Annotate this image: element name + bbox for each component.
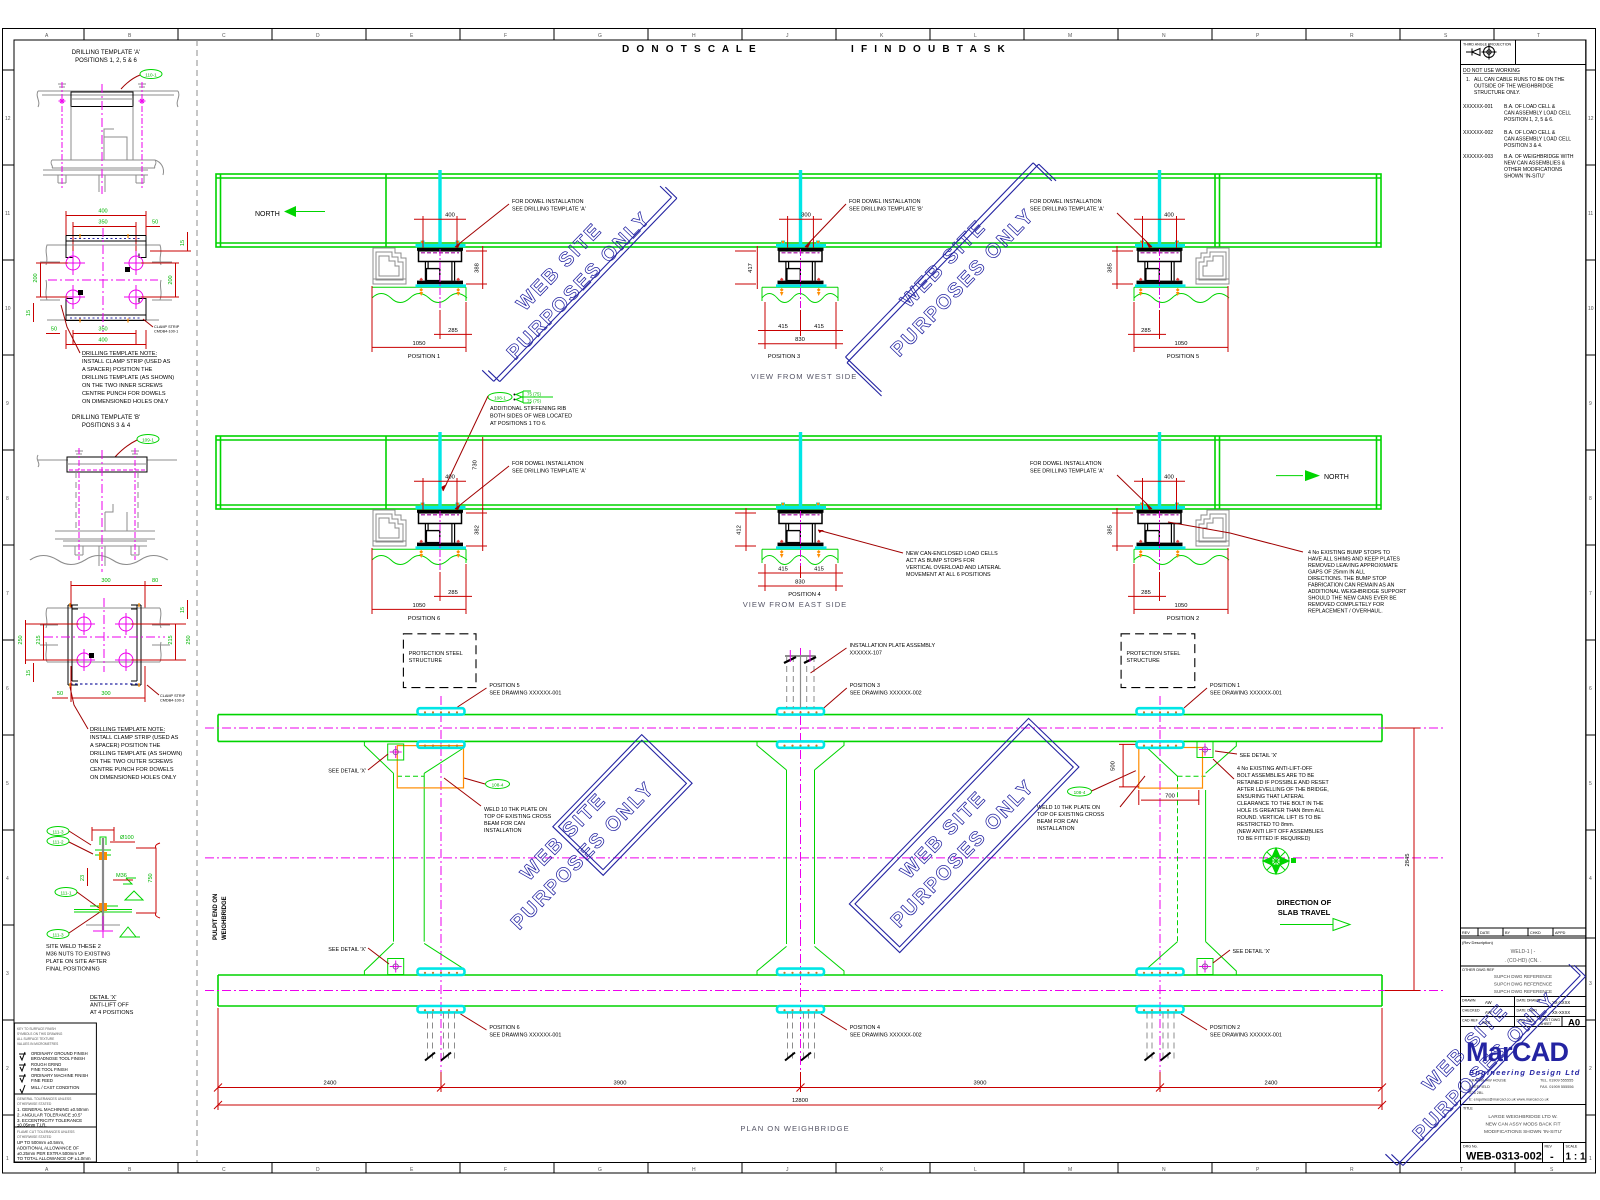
- svg-text:MOVEMENT AT ALL 6 POSITIONS: MOVEMENT AT ALL 6 POSITIONS: [906, 572, 991, 578]
- svg-text:6: 6: [1589, 686, 1592, 692]
- svg-text:4: 4: [6, 876, 9, 882]
- svg-text:75 (75): 75 (75): [527, 392, 541, 397]
- svg-text:285: 285: [448, 590, 458, 596]
- svg-text:NORTH: NORTH: [255, 211, 280, 218]
- svg-text:SEE DRILLING TEMPLATE 'A': SEE DRILLING TEMPLATE 'A': [512, 207, 586, 213]
- svg-text:10: 10: [5, 306, 11, 312]
- svg-text:110-1: 110-1: [145, 73, 157, 78]
- svg-text:FOR DOWEL INSTALLATION: FOR DOWEL INSTALLATION: [1030, 199, 1102, 205]
- svg-text:4: 4: [1589, 876, 1592, 882]
- svg-text:1050: 1050: [1175, 603, 1188, 609]
- svg-text:TEL. 01909 555555: TEL. 01909 555555: [1540, 1079, 1573, 1083]
- svg-text:PLATE ON SITE AFTER: PLATE ON SITE AFTER: [46, 959, 107, 965]
- svg-text:APPD: APPD: [1555, 931, 1566, 935]
- svg-text:2. ANGULAR TOLERANCE ±0.5°: 2. ANGULAR TOLERANCE ±0.5°: [17, 1113, 82, 1118]
- svg-text:200: 200: [168, 275, 174, 284]
- svg-text:FINAL POSITIONING: FINAL POSITIONING: [46, 967, 100, 973]
- svg-text:OTHER DWG REF: OTHER DWG REF: [1462, 968, 1495, 972]
- svg-text:15: 15: [180, 607, 186, 613]
- svg-text:BOTH SIDES OF WEB LOCATED: BOTH SIDES OF WEB LOCATED: [490, 414, 572, 420]
- svg-text:F: F: [504, 1167, 507, 1173]
- svg-text:NORTH: NORTH: [1324, 474, 1349, 481]
- svg-text:ADDITIONAL STIFFENING RIB: ADDITIONAL STIFFENING RIB: [490, 406, 567, 412]
- svg-text:ON THE TWO INNER SCREWS: ON THE TWO INNER SCREWS: [82, 383, 163, 389]
- svg-text:285: 285: [1141, 590, 1151, 596]
- svg-text:385: 385: [1108, 525, 1114, 535]
- svg-text:DO NOT USE WORKING: DO NOT USE WORKING: [1463, 68, 1520, 74]
- svg-text:C: C: [222, 33, 226, 39]
- svg-text:8: 8: [6, 496, 9, 502]
- svg-text:830: 830: [795, 580, 805, 586]
- svg-text:3: 3: [6, 971, 9, 977]
- svg-text:AW: AW: [1485, 1000, 1492, 1005]
- svg-text:SEE DRAWING XXXXXX-002: SEE DRAWING XXXXXX-002: [850, 691, 922, 697]
- svg-text:215: 215: [36, 635, 42, 644]
- svg-text:GAPS OF 25mm IN ALL: GAPS OF 25mm IN ALL: [1308, 570, 1365, 576]
- svg-text:FOR DOWEL INSTALLATION: FOR DOWEL INSTALLATION: [512, 199, 584, 205]
- svg-text:F: F: [504, 33, 507, 39]
- svg-text:FABRICATION CAN REMAIN AS AN: FABRICATION CAN REMAIN AS AN: [1308, 583, 1395, 589]
- svg-text:INSTALLATION: INSTALLATION: [484, 828, 522, 834]
- svg-text:WEIGHBRIDGE: WEIGHBRIDGE: [222, 896, 228, 940]
- svg-text:POSITION 5: POSITION 5: [489, 683, 519, 689]
- svg-text:11: 11: [5, 211, 10, 217]
- svg-text:BOLT ASSEMBLIES ARE TO BE: BOLT ASSEMBLIES ARE TO BE: [1237, 773, 1315, 779]
- svg-text:PULPIT END ON: PULPIT END ON: [213, 894, 219, 940]
- svg-text:MILL / CAST CONDITION: MILL / CAST CONDITION: [31, 1085, 79, 1090]
- svg-text:TO BE FITTED IF REQUIRED): TO BE FITTED IF REQUIRED): [1237, 836, 1310, 842]
- svg-text:400: 400: [98, 338, 107, 344]
- svg-text:DETAIL 'X': DETAIL 'X': [90, 995, 116, 1001]
- svg-text:CHECKED: CHECKED: [1462, 1009, 1480, 1013]
- svg-text:1 : 1: 1 : 1: [1566, 1152, 1586, 1163]
- svg-text:VERTICAL OVERLOAD AND LATERAL: VERTICAL OVERLOAD AND LATERAL: [906, 565, 1001, 571]
- svg-text:108-4: 108-4: [492, 783, 504, 788]
- svg-text:111-1: 111-1: [60, 891, 72, 896]
- svg-text:INSTALL CLAMP STRIP (USED AS: INSTALL CLAMP STRIP (USED AS: [82, 359, 171, 365]
- svg-text:DRILLING TEMPLATE 'A': DRILLING TEMPLATE 'A': [72, 50, 140, 56]
- svg-text:12: 12: [1588, 116, 1594, 122]
- svg-text:T: T: [1537, 33, 1540, 39]
- svg-text:TOP OF EXISTING CROSS: TOP OF EXISTING CROSS: [484, 814, 552, 820]
- svg-text:SEE DRAWING XXXXXX-002: SEE DRAWING XXXXXX-002: [850, 1033, 922, 1039]
- svg-text:ENSURING THAT LATERAL: ENSURING THAT LATERAL: [1237, 794, 1304, 800]
- svg-text:750: 750: [148, 873, 154, 882]
- svg-text:FOR DOWEL INSTALLATION: FOR DOWEL INSTALLATION: [1030, 461, 1102, 467]
- svg-text:XXXXXX-107: XXXXXX-107: [850, 651, 882, 657]
- svg-text:400: 400: [1164, 475, 1174, 481]
- svg-text:SUPCH DWG REFERENCE: SUPCH DWG REFERENCE: [1494, 982, 1552, 987]
- svg-text:DRG No.: DRG No.: [1463, 1145, 1478, 1149]
- svg-text:REV: REV: [1545, 1145, 1553, 1149]
- svg-text:INSTALLATION: INSTALLATION: [1037, 826, 1075, 832]
- svg-text:ROUND. VERTICAL LIFT IS TO BE: ROUND. VERTICAL LIFT IS TO BE: [1237, 815, 1321, 821]
- svg-text:POSITION 3: POSITION 3: [850, 683, 880, 689]
- svg-text:400: 400: [445, 475, 455, 481]
- svg-text:15: 15: [180, 240, 186, 246]
- svg-text:REMOVED COMPLETELY FOR: REMOVED COMPLETELY FOR: [1308, 602, 1384, 608]
- svg-text:1050: 1050: [413, 603, 426, 609]
- svg-text:400: 400: [1164, 213, 1174, 219]
- svg-text:111-2: 111-2: [52, 840, 64, 845]
- svg-text:A SPACER) POSITION THE: A SPACER) POSITION THE: [82, 367, 153, 373]
- svg-text:M36 NUTS TO EXISTING: M36 NUTS TO EXISTING: [46, 952, 110, 958]
- svg-text:FLAME CUT TOLERANCES UNLESS: FLAME CUT TOLERANCES UNLESS: [17, 1130, 75, 1134]
- svg-text:50: 50: [51, 327, 57, 333]
- svg-text:ACT AS BUMP STOPS FOR: ACT AS BUMP STOPS FOR: [906, 558, 975, 564]
- svg-text:POSITION 1: POSITION 1: [408, 354, 441, 360]
- svg-text:I F I N D O U B T A S K: I F I N D O U B T A S K: [851, 44, 1007, 55]
- svg-text:STRUCTURE: STRUCTURE: [409, 658, 443, 664]
- svg-text:OTHER MODIFICATIONS: OTHER MODIFICATIONS: [1504, 167, 1563, 173]
- svg-text:Ø100: Ø100: [120, 835, 134, 841]
- svg-text:(Rev Description): (Rev Description): [1462, 940, 1494, 945]
- svg-text:SLAB TRAVEL: SLAB TRAVEL: [1278, 908, 1331, 917]
- svg-text:POSITION 4: POSITION 4: [850, 1025, 880, 1031]
- svg-text:BROADNOSE TOOL FINISH: BROADNOSE TOOL FINISH: [31, 1056, 85, 1061]
- svg-text:111-3: 111-3: [52, 933, 64, 938]
- svg-text:50: 50: [57, 691, 63, 697]
- svg-text:300: 300: [801, 213, 811, 219]
- svg-text:415: 415: [814, 324, 824, 330]
- svg-text:2: 2: [1589, 1066, 1592, 1072]
- svg-text:CAN ASSEMBLY LOAD CELL: CAN ASSEMBLY LOAD CELL: [1504, 111, 1571, 117]
- svg-text:AT 4 POSITIONS: AT 4 POSITIONS: [90, 1010, 134, 1016]
- svg-text:N: N: [1162, 1167, 1166, 1173]
- svg-text:AT POSITIONS 1 TO 6.: AT POSITIONS 1 TO 6.: [490, 421, 547, 427]
- svg-text:1050: 1050: [413, 341, 426, 347]
- svg-text:SHOWN 'IN-SITU': SHOWN 'IN-SITU': [1504, 174, 1545, 180]
- svg-text:POSITIONS 1, 2, 5 & 6: POSITIONS 1, 2, 5 & 6: [75, 58, 137, 64]
- svg-text:D: D: [316, 33, 320, 39]
- svg-text:CLAMP STRIP: CLAMP STRIP: [160, 694, 186, 698]
- svg-text:POSITION 1, 2, 5 & 6.: POSITION 1, 2, 5 & 6.: [1504, 117, 1553, 123]
- svg-text:XXXXXX-002: XXXXXX-002: [1463, 130, 1493, 136]
- svg-text:12800: 12800: [792, 1098, 808, 1104]
- svg-text:350: 350: [98, 220, 107, 226]
- svg-text:B.A. OF LOAD CELL &: B.A. OF LOAD CELL &: [1504, 130, 1556, 136]
- svg-text:1050: 1050: [1175, 341, 1188, 347]
- svg-text:SHOULD THE NEW CANS EVER BE: SHOULD THE NEW CANS EVER BE: [1308, 596, 1397, 602]
- svg-text:VIEW FROM WEST SIDE: VIEW FROM WEST SIDE: [751, 372, 858, 381]
- svg-text:500: 500: [1111, 761, 1117, 771]
- svg-text:T: T: [1460, 1167, 1463, 1173]
- svg-text:300: 300: [101, 691, 110, 697]
- svg-text:DRILLING TEMPLATE 'B': DRILLING TEMPLATE 'B': [72, 415, 140, 421]
- svg-text:XX-XXXX: XX-XXXX: [1552, 1010, 1570, 1015]
- svg-text:INSTALL CLAMP STRIP (USED AS: INSTALL CLAMP STRIP (USED AS: [90, 735, 179, 741]
- svg-text:ALL CAN CABLE RUNS TO BE ON TH: ALL CAN CABLE RUNS TO BE ON THE: [1474, 77, 1565, 83]
- svg-text:DIRECTIONS. THE BUMP STOP: DIRECTIONS. THE BUMP STOP: [1308, 576, 1387, 582]
- svg-text:DIRECTION OF: DIRECTION OF: [1277, 898, 1332, 907]
- svg-text:4 No EXISTING BUMP STOPS TO: 4 No EXISTING BUMP STOPS TO: [1308, 550, 1390, 556]
- svg-text:HAVE ALL SHIMS AND KEEP PLATES: HAVE ALL SHIMS AND KEEP PLATES: [1308, 557, 1400, 563]
- svg-text:CAN ASSEMBLY LOAD CELL: CAN ASSEMBLY LOAD CELL: [1504, 137, 1571, 143]
- svg-text:POSITION 2: POSITION 2: [1167, 616, 1200, 622]
- svg-text:CLAMP STRIP: CLAMP STRIP: [154, 325, 180, 329]
- svg-text:HOLE IS GREATER THAN 8mm ALL: HOLE IS GREATER THAN 8mm ALL: [1237, 808, 1324, 814]
- svg-text:15: 15: [26, 310, 32, 316]
- svg-text:STRUCTURE: STRUCTURE: [1127, 658, 1161, 664]
- svg-text:SYMBOLS ON THIS DRAWING: SYMBOLS ON THIS DRAWING: [17, 1032, 63, 1036]
- svg-text:SEE DETAIL 'X': SEE DETAIL 'X': [1240, 753, 1278, 759]
- svg-text:730: 730: [473, 460, 479, 470]
- svg-text:POSITIONS 3 & 4: POSITIONS 3 & 4: [82, 423, 131, 429]
- svg-text:SUPCH DWG REFERENCE: SUPCH DWG REFERENCE: [1494, 974, 1552, 979]
- svg-text:PROTECTION STEEL: PROTECTION STEEL: [409, 651, 463, 657]
- svg-text:D: D: [316, 1167, 320, 1173]
- svg-text:415: 415: [778, 324, 788, 330]
- svg-text:SEE DRAWING XXXXXX-001: SEE DRAWING XXXXXX-001: [489, 1033, 561, 1039]
- svg-text:REMOVED LEAVING APPROXIMATE: REMOVED LEAVING APPROXIMATE: [1308, 563, 1398, 569]
- svg-text:-: -: [1550, 1151, 1554, 1163]
- svg-text:XXXXXX-001: XXXXXX-001: [1463, 104, 1493, 110]
- svg-text:285: 285: [448, 328, 458, 334]
- svg-text:NEW CAN ASSEMBLIES &: NEW CAN ASSEMBLIES &: [1504, 161, 1566, 167]
- svg-text:CMDB4-100-1: CMDB4-100-1: [160, 699, 184, 703]
- svg-text:SEE DRILLING TEMPLATE 'B': SEE DRILLING TEMPLATE 'B': [849, 207, 923, 213]
- svg-text:PROTECTION STEEL: PROTECTION STEEL: [1127, 651, 1181, 657]
- svg-text:H: H: [692, 33, 696, 39]
- svg-text:7: 7: [6, 591, 9, 597]
- svg-text:350: 350: [98, 327, 107, 333]
- svg-text:SEE DRILLING TEMPLATE 'A': SEE DRILLING TEMPLATE 'A': [512, 469, 586, 475]
- svg-text:5: 5: [6, 781, 9, 787]
- svg-text:415: 415: [814, 567, 824, 573]
- svg-text:POSITION 3: POSITION 3: [768, 354, 801, 360]
- svg-text:415: 415: [778, 567, 788, 573]
- svg-text:. (CO-HD) (CN. .: . (CO-HD) (CN. .: [1505, 958, 1542, 964]
- svg-text:RESTRICTED TO 8mm.: RESTRICTED TO 8mm.: [1237, 822, 1294, 828]
- svg-text:XXXXXX-003: XXXXXX-003: [1463, 154, 1493, 160]
- svg-text:G: G: [598, 33, 602, 39]
- svg-text:G: G: [598, 1167, 602, 1173]
- svg-text:R: R: [1350, 1167, 1354, 1173]
- svg-text:417: 417: [748, 263, 754, 273]
- svg-text:111-3: 111-3: [52, 830, 64, 835]
- svg-text:8: 8: [1589, 496, 1592, 502]
- svg-text:108-4: 108-4: [1074, 790, 1086, 795]
- svg-text:POSITION 5: POSITION 5: [1167, 354, 1200, 360]
- svg-text:412: 412: [737, 525, 743, 535]
- svg-text:TO TOTAL ALLOWANCE OF ±1.0mm: TO TOTAL ALLOWANCE OF ±1.0mm: [17, 1156, 91, 1161]
- svg-text:REPLACEMENT / OVERHAUL.: REPLACEMENT / OVERHAUL.: [1308, 609, 1383, 615]
- svg-text:RETAINED IF POSSIBLE AND RESET: RETAINED IF POSSIBLE AND RESET: [1237, 780, 1330, 786]
- svg-text:200: 200: [33, 273, 39, 282]
- svg-text:3: 3: [1589, 981, 1592, 987]
- svg-text:NEW CAN-ENCLOSED LOAD CELLS: NEW CAN-ENCLOSED LOAD CELLS: [906, 551, 998, 557]
- svg-text:12: 12: [5, 116, 11, 122]
- svg-text:POSITION 3 & 4.: POSITION 3 & 4.: [1504, 143, 1542, 149]
- svg-text:POSITION 4: POSITION 4: [788, 592, 821, 598]
- svg-text:ADDITIONAL WEIGHBRIDGE SUPPORT: ADDITIONAL WEIGHBRIDGE SUPPORT: [1308, 589, 1407, 595]
- svg-text:OTHERWISE STATED: OTHERWISE STATED: [17, 1102, 52, 1106]
- svg-text:POSITION 2: POSITION 2: [1210, 1025, 1240, 1031]
- svg-text:250: 250: [18, 635, 24, 644]
- svg-text:N: N: [1162, 33, 1166, 39]
- svg-text:400: 400: [98, 209, 107, 215]
- svg-text:PLAN ON WEIGHBRIDGE: PLAN ON WEIGHBRIDGE: [740, 1124, 849, 1133]
- svg-text:BY: BY: [1505, 931, 1511, 935]
- svg-text:VALUES IN MICROMETRES: VALUES IN MICROMETRES: [17, 1042, 58, 1046]
- svg-text:TITLE: TITLE: [1463, 1107, 1473, 1111]
- svg-text:75 (75): 75 (75): [527, 399, 541, 404]
- svg-text:FOR DOWEL INSTALLATION: FOR DOWEL INSTALLATION: [512, 461, 584, 467]
- svg-text:ANTI-LIFT OFF: ANTI-LIFT OFF: [90, 1003, 129, 1009]
- svg-text:WELD 10 THK PLATE ON: WELD 10 THK PLATE ON: [484, 807, 547, 813]
- svg-text:9: 9: [1589, 401, 1592, 407]
- svg-text:FOR DOWEL INSTALLATION: FOR DOWEL INSTALLATION: [849, 199, 921, 205]
- svg-text:TOP OF EXISTING CROSS: TOP OF EXISTING CROSS: [1037, 812, 1105, 818]
- svg-text:±0.05mm T.I.R.: ±0.05mm T.I.R.: [17, 1123, 47, 1128]
- svg-text:M: M: [1068, 33, 1072, 39]
- svg-text:OUTSIDE OF THE WEIGHBRIDGE: OUTSIDE OF THE WEIGHBRIDGE: [1474, 84, 1554, 90]
- svg-text:VIEW FROM EAST SIDE: VIEW FROM EAST SIDE: [743, 600, 848, 609]
- svg-text:L: L: [974, 33, 977, 39]
- svg-text:WELD 10 THK PLATE ON: WELD 10 THK PLATE ON: [1037, 805, 1100, 811]
- svg-text:SEE DRILLING TEMPLATE 'A': SEE DRILLING TEMPLATE 'A': [1030, 207, 1104, 213]
- svg-text:POSITION 1: POSITION 1: [1210, 683, 1240, 689]
- svg-text:M36: M36: [116, 873, 127, 879]
- svg-text:2: 2: [6, 1066, 9, 1072]
- svg-text:SEE DETAIL 'X': SEE DETAIL 'X': [328, 947, 366, 953]
- svg-text:ON DIMENSIONED HOLES ONLY: ON DIMENSIONED HOLES ONLY: [90, 775, 177, 781]
- svg-text:E: enquiries@marcad.co.uk www: E: enquiries@marcad.co.uk www.marcad.co.…: [1469, 1098, 1549, 1102]
- svg-text:9: 9: [6, 401, 9, 407]
- svg-text:L: L: [974, 1167, 977, 1173]
- svg-text:GENERAL TOLERANCES UNLESS: GENERAL TOLERANCES UNLESS: [17, 1097, 72, 1101]
- svg-text:THIRD ANGLE PROJECTION: THIRD ANGLE PROJECTION: [1463, 43, 1512, 47]
- svg-text:DRILLING TEMPLATE (AS SHOWN): DRILLING TEMPLATE (AS SHOWN): [82, 375, 174, 381]
- svg-text:LARGE WEIGHBRIDGE LTD W.: LARGE WEIGHBRIDGE LTD W.: [1488, 1114, 1557, 1120]
- svg-text:MODIFICATIONS SHOWN 'IN-SITU': MODIFICATIONS SHOWN 'IN-SITU': [1484, 1129, 1562, 1135]
- svg-text:DATE: DATE: [1480, 931, 1490, 935]
- svg-text:WELD-1 | -: WELD-1 | -: [1511, 949, 1536, 955]
- svg-text:10: 10: [1588, 306, 1594, 312]
- svg-text:SEE DRAWING XXXXXX-001: SEE DRAWING XXXXXX-001: [1210, 1033, 1282, 1039]
- svg-text:4 No EXISTING ANTI-LIFT-OFF: 4 No EXISTING ANTI-LIFT-OFF: [1237, 766, 1313, 772]
- svg-text:CMDB4-100-1: CMDB4-100-1: [154, 330, 178, 334]
- svg-text:SEE DRILLING TEMPLATE 'A': SEE DRILLING TEMPLATE 'A': [1030, 469, 1104, 475]
- svg-text:B.A. OF LOAD CELL &: B.A. OF LOAD CELL &: [1504, 104, 1556, 110]
- svg-text:CLEARANCE TO THE BOLT IN THE: CLEARANCE TO THE BOLT IN THE: [1237, 801, 1324, 807]
- svg-text:109-1: 109-1: [142, 438, 154, 443]
- svg-text:SEE DETAIL 'X': SEE DETAIL 'X': [1233, 949, 1271, 955]
- svg-text:23: 23: [80, 875, 86, 881]
- svg-text:1. GENERAL MACHINING ±0.50mm: 1. GENERAL MACHINING ±0.50mm: [17, 1107, 89, 1112]
- svg-text:AFTER LEVELLING OF THE BRIDGE,: AFTER LEVELLING OF THE BRIDGE,: [1237, 787, 1329, 793]
- svg-text:POSITION 6: POSITION 6: [408, 616, 441, 622]
- svg-text:ADDITIONAL ALLOWANCE OF: ADDITIONAL ALLOWANCE OF: [17, 1146, 79, 1151]
- svg-text:ON THE TWO OUTER SCREWS: ON THE TWO OUTER SCREWS: [90, 759, 173, 765]
- svg-text:80: 80: [152, 578, 158, 584]
- svg-text:CENTRE PUNCH FOR DOWELS: CENTRE PUNCH FOR DOWELS: [90, 767, 174, 773]
- svg-text:WEB-0313-002: WEB-0313-002: [1466, 1151, 1542, 1163]
- svg-text:SEE DRAWING XXXXXX-001: SEE DRAWING XXXXXX-001: [489, 691, 561, 697]
- svg-text:400: 400: [445, 213, 455, 219]
- svg-text:2845: 2845: [1405, 854, 1411, 867]
- svg-text:M: M: [1068, 1167, 1072, 1173]
- svg-text:BEAM FOR CAN: BEAM FOR CAN: [484, 821, 525, 827]
- svg-text:DRILLING TEMPLATE (AS SHOWN): DRILLING TEMPLATE (AS SHOWN): [90, 751, 182, 757]
- svg-text:ON DIMENSIONED HOLES ONLY: ON DIMENSIONED HOLES ONLY: [82, 399, 169, 405]
- svg-text:SITE WELD THESE 2: SITE WELD THESE 2: [46, 944, 101, 950]
- svg-text:2400: 2400: [1265, 1081, 1278, 1087]
- svg-text:1.: 1.: [1466, 77, 1470, 83]
- svg-text:388: 388: [475, 263, 481, 273]
- svg-text:385: 385: [1108, 263, 1114, 273]
- svg-text:7: 7: [1589, 591, 1592, 597]
- svg-text:R: R: [1350, 33, 1354, 39]
- svg-text:D O N O T S C A L E: D O N O T S C A L E: [622, 44, 758, 55]
- svg-text:POSITION 6: POSITION 6: [489, 1025, 519, 1031]
- svg-text:H: H: [692, 1167, 696, 1173]
- svg-text:382: 382: [475, 525, 481, 535]
- svg-text:A SPACER) POSITION THE: A SPACER) POSITION THE: [90, 743, 161, 749]
- svg-text:3900: 3900: [974, 1081, 987, 1087]
- svg-text:2400: 2400: [324, 1081, 337, 1087]
- svg-text:15: 15: [26, 670, 32, 676]
- svg-text:B.A. OF WEIGHBRIDGE WITH: B.A. OF WEIGHBRIDGE WITH: [1504, 154, 1574, 160]
- svg-text:CENTRE PUNCH FOR DOWELS: CENTRE PUNCH FOR DOWELS: [82, 391, 166, 397]
- svg-text:50: 50: [152, 220, 158, 226]
- svg-text:6: 6: [6, 686, 9, 692]
- svg-text:FAX. 01909 555556: FAX. 01909 555556: [1540, 1085, 1574, 1089]
- svg-text:11: 11: [1588, 211, 1593, 217]
- svg-text:SEE DRAWING XXXXXX-001: SEE DRAWING XXXXXX-001: [1210, 691, 1282, 697]
- svg-text:KEY TO SURFACE FINISH: KEY TO SURFACE FINISH: [17, 1027, 56, 1031]
- svg-text:215: 215: [168, 635, 174, 644]
- svg-text:INSTALLATION PLATE ASSEMBLY: INSTALLATION PLATE ASSEMBLY: [850, 643, 936, 649]
- svg-text:5: 5: [1589, 781, 1592, 787]
- svg-text:3900: 3900: [614, 1081, 627, 1087]
- svg-text:DRILLING TEMPLATE NOTE:: DRILLING TEMPLATE NOTE:: [82, 351, 157, 357]
- svg-text:(NEW ANTI LIFT OFF ASSEMBLIES: (NEW ANTI LIFT OFF ASSEMBLIES: [1237, 829, 1324, 835]
- svg-text:C: C: [222, 1167, 226, 1173]
- svg-text:STRUCTURE ONLY.: STRUCTURE ONLY.: [1474, 90, 1520, 96]
- svg-text:DRILLING TEMPLATE NOTE:: DRILLING TEMPLATE NOTE:: [90, 727, 165, 733]
- svg-text:ALL SURFACE TEXTURE: ALL SURFACE TEXTURE: [17, 1037, 54, 1041]
- svg-text:300: 300: [101, 578, 110, 584]
- svg-text:REV: REV: [1462, 931, 1470, 935]
- svg-text:1: 1: [6, 1156, 9, 1162]
- svg-text:250: 250: [186, 635, 192, 644]
- svg-text:830: 830: [795, 337, 805, 343]
- svg-text:285: 285: [1141, 328, 1151, 334]
- svg-text:FINE FEED: FINE FEED: [31, 1078, 53, 1083]
- svg-text:OTHERWISE STATED: OTHERWISE STATED: [17, 1135, 52, 1139]
- svg-text:FINE TOOL FINISH: FINE TOOL FINISH: [31, 1067, 68, 1072]
- svg-text:SEE DETAIL 'X': SEE DETAIL 'X': [328, 769, 366, 775]
- svg-text:BEAM FOR CAN: BEAM FOR CAN: [1037, 819, 1078, 825]
- svg-text:DRAWN: DRAWN: [1462, 999, 1476, 1003]
- svg-text:700: 700: [1165, 794, 1175, 800]
- svg-text:CHKD: CHKD: [1530, 931, 1541, 935]
- svg-text:108-1: 108-1: [494, 396, 506, 401]
- svg-text:NEW CAN ASSY MODS BACK FIT: NEW CAN ASSY MODS BACK FIT: [1485, 1122, 1560, 1128]
- svg-text:SCALE: SCALE: [1566, 1145, 1578, 1149]
- svg-text:1: 1: [1589, 1156, 1592, 1162]
- svg-text:UP TO 500mm ±0.5mm,: UP TO 500mm ±0.5mm,: [17, 1140, 64, 1145]
